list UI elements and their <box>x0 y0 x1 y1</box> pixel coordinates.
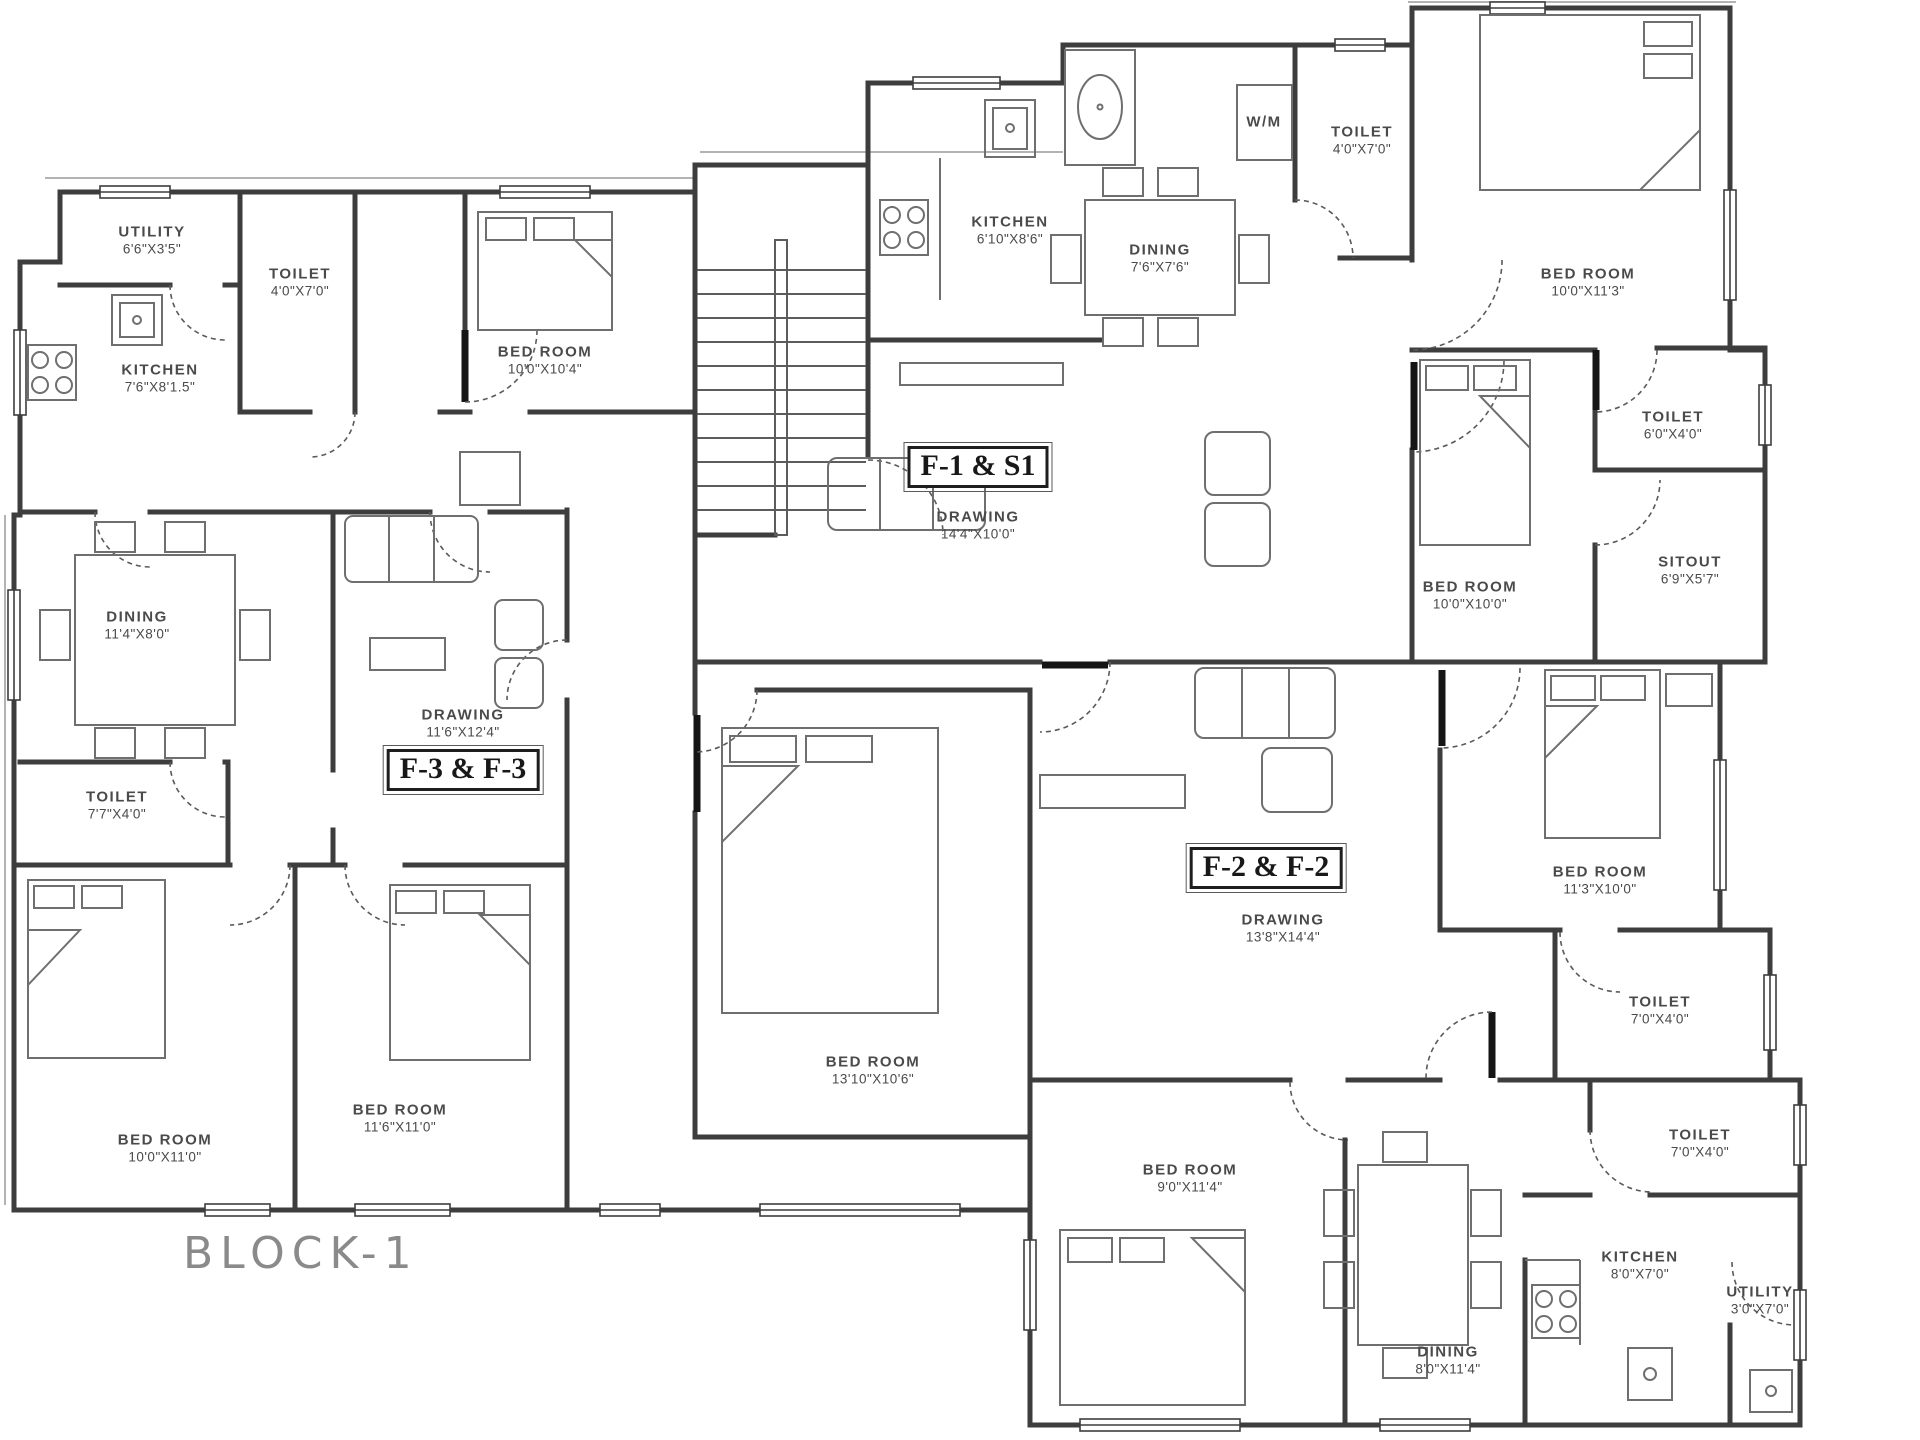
sofa-icon <box>828 363 1270 566</box>
door-arcs <box>95 200 1795 1325</box>
room-label-utility-1: UTILITY6'6"X3'5" <box>118 224 185 257</box>
bed-icon <box>28 880 165 1058</box>
room-label-bedroom-4: BED ROOM10'0"X11'3" <box>1541 266 1636 299</box>
bed-icon <box>390 885 530 1060</box>
room-label-bedroom-3: BED ROOM11'6"X11'0" <box>353 1102 448 1135</box>
sink-icon <box>985 100 1035 157</box>
dining-table-icon <box>1324 1132 1501 1378</box>
bed-icon <box>1480 15 1700 190</box>
window-symbols <box>8 2 1806 1431</box>
unit-label-f1s1: F-1 & S1 <box>908 446 1049 488</box>
room-label-toilet-2: TOILET7'7"X4'0" <box>86 789 148 822</box>
room-label-dining-3: DINING8'0"X11'4" <box>1415 1344 1480 1377</box>
bed-icon <box>478 212 612 330</box>
sink-icon <box>1750 1370 1792 1412</box>
room-label-bedroom-6: BED ROOM13'10"X10'6" <box>826 1054 921 1087</box>
sofa-icon <box>1040 668 1335 812</box>
room-label-kitchen-1: KITCHEN7'6"X8'1.5" <box>121 362 198 395</box>
bed-icon <box>1545 670 1712 838</box>
wash-basin-icon <box>1065 50 1135 165</box>
room-label-dining-2: DINING7'6"X7'6" <box>1129 242 1191 275</box>
room-label-drawing-f1: DRAWING14'4"X10'0" <box>937 509 1020 542</box>
room-label-dining-1: DINING11'4"X8'0" <box>104 609 169 642</box>
room-label-bedroom-2: BED ROOM10'0"X11'0" <box>118 1132 213 1165</box>
room-label-bedroom-1: BED ROOM10'0"X10'4" <box>498 344 593 377</box>
room-label-sitout: SITOUT6'9"X5'7" <box>1658 554 1722 587</box>
stove-icon <box>880 200 928 255</box>
room-label-bedroom-7: BED ROOM11'3"X10'0" <box>1553 864 1648 897</box>
bed-icon <box>722 728 938 1013</box>
kitchen-counter <box>940 158 1580 1345</box>
room-label-kitchen-2: KITCHEN6'10"X8'6" <box>971 214 1048 247</box>
fixture-label-wm: W/M <box>1246 114 1281 131</box>
bed-icon <box>1060 1230 1245 1405</box>
stove-icon <box>1532 1285 1580 1338</box>
sink-icon <box>1628 1348 1672 1400</box>
stove-icon <box>28 345 76 400</box>
unit-label-f3f3: F-3 & F-3 <box>387 749 540 791</box>
room-label-kitchen-3: KITCHEN8'0"X7'0" <box>1601 1249 1678 1282</box>
room-label-toilet-1: TOILET4'0"X7'0" <box>269 266 331 299</box>
room-label-bedroom-8: BED ROOM9'0"X11'4" <box>1143 1162 1238 1195</box>
floor-plan-canvas: UTILITY6'6"X3'5" TOILET4'0"X7'0" KITCHEN… <box>0 0 1920 1440</box>
stair-rail <box>775 240 787 535</box>
room-label-toilet-6: TOILET7'0"X4'0" <box>1669 1127 1731 1160</box>
room-label-drawing-f3: DRAWING11'6"X12'4" <box>422 707 505 740</box>
sink-icon <box>112 295 162 345</box>
room-label-toilet-3: TOILET4'0"X7'0" <box>1331 124 1393 157</box>
bed-icon <box>1420 360 1530 545</box>
staircase <box>697 240 866 535</box>
unit-label-f2f2: F-2 & F-2 <box>1190 847 1343 889</box>
room-label-bedroom-5: BED ROOM10'0"X10'0" <box>1423 579 1518 612</box>
room-label-toilet-5: TOILET7'0"X4'0" <box>1629 994 1691 1027</box>
block-title: BLOCK-1 <box>183 1228 419 1279</box>
room-label-utility-2: UTILITY3'0"X7'0" <box>1726 1284 1793 1317</box>
room-label-toilet-4: TOILET6'0"X4'0" <box>1642 409 1704 442</box>
floorplan-drawing <box>0 0 1920 1440</box>
room-label-drawing-f2: DRAWING13'8"X14'4" <box>1242 912 1325 945</box>
sofa-icon <box>345 452 543 708</box>
